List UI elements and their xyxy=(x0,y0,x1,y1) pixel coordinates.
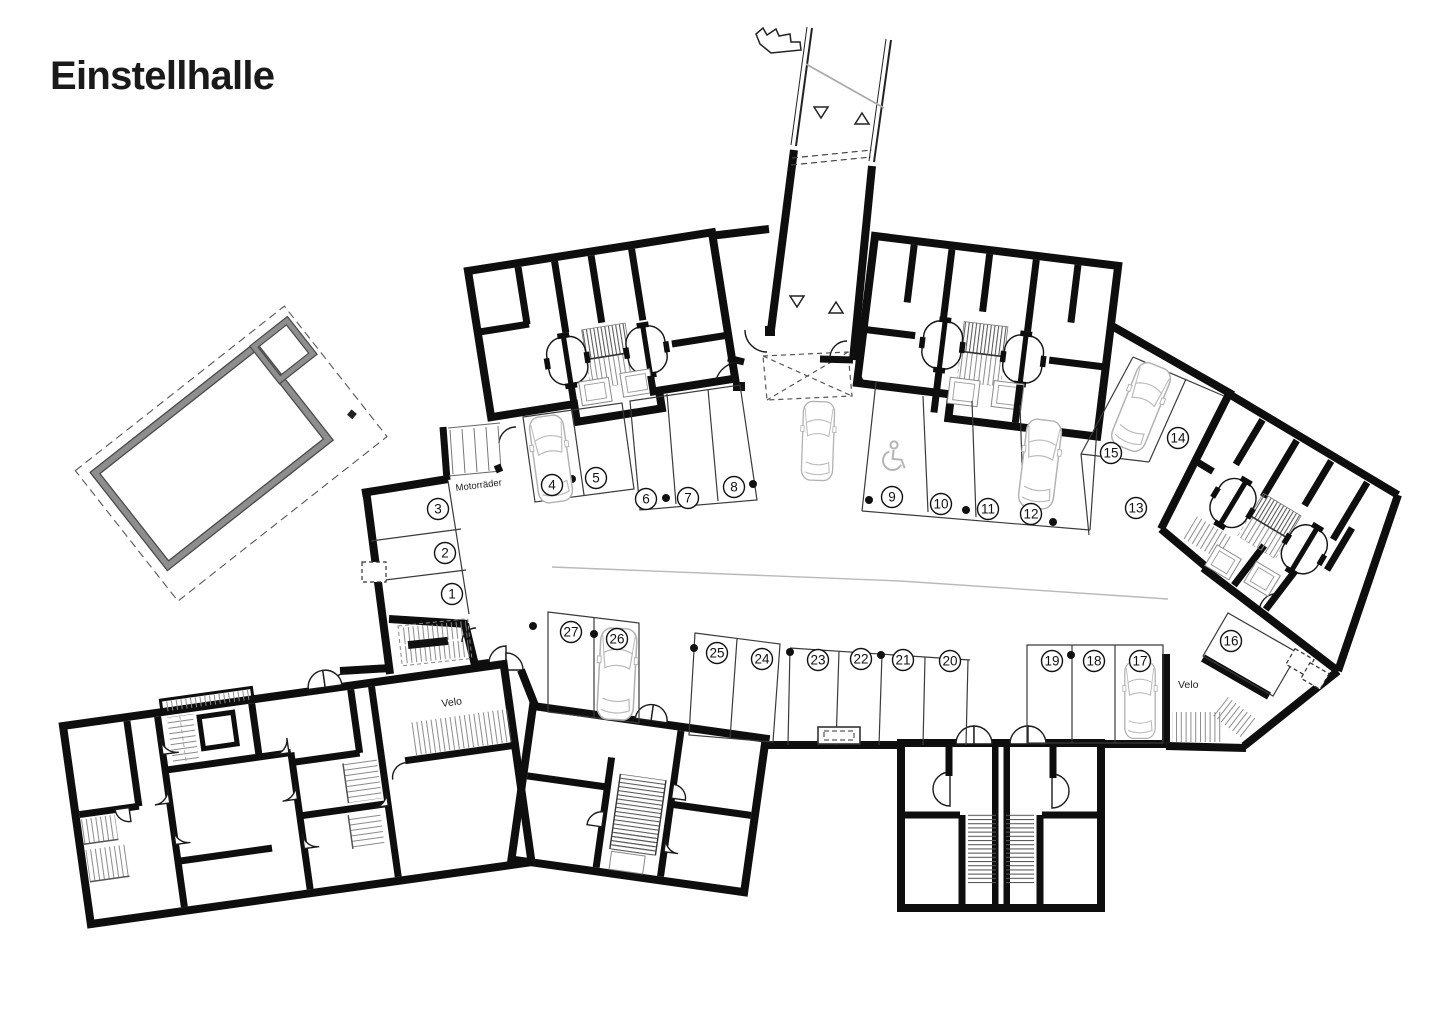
svg-text:1: 1 xyxy=(448,587,456,602)
svg-text:26: 26 xyxy=(609,632,624,647)
svg-text:13: 13 xyxy=(1128,501,1143,516)
svg-text:8: 8 xyxy=(730,480,738,495)
svg-text:14: 14 xyxy=(1170,431,1186,446)
svg-text:Velo: Velo xyxy=(1178,679,1199,691)
svg-text:25: 25 xyxy=(709,646,724,661)
svg-text:Einstellhalle: Einstellhalle xyxy=(50,54,274,98)
svg-text:16: 16 xyxy=(1223,634,1238,649)
svg-text:12: 12 xyxy=(1023,507,1038,522)
svg-text:7: 7 xyxy=(684,491,692,506)
svg-text:6: 6 xyxy=(642,492,650,507)
svg-text:10: 10 xyxy=(933,497,948,512)
svg-text:11: 11 xyxy=(981,502,995,517)
svg-text:27: 27 xyxy=(563,625,578,640)
svg-text:20: 20 xyxy=(942,654,957,669)
svg-text:3: 3 xyxy=(434,502,442,517)
svg-text:15: 15 xyxy=(1103,446,1118,461)
svg-text:24: 24 xyxy=(754,652,770,667)
svg-text:22: 22 xyxy=(853,652,868,667)
svg-text:19: 19 xyxy=(1044,654,1059,669)
svg-text:4: 4 xyxy=(548,478,556,493)
svg-text:2: 2 xyxy=(441,546,449,561)
svg-text:18: 18 xyxy=(1086,654,1101,669)
svg-text:5: 5 xyxy=(592,471,600,486)
svg-text:23: 23 xyxy=(810,653,825,668)
svg-text:17: 17 xyxy=(1132,654,1147,669)
svg-text:21: 21 xyxy=(895,653,910,668)
svg-text:9: 9 xyxy=(888,490,896,505)
